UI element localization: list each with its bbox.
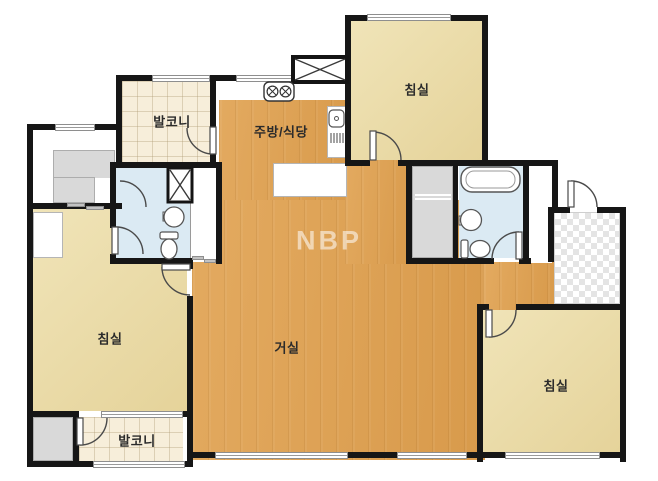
door-leaf — [77, 418, 83, 445]
watermark: NBP — [296, 226, 362, 257]
bathroom-right-fixtures — [459, 167, 520, 258]
door-leaf — [516, 232, 522, 259]
label-kitchen-dining: 주방/식당 — [254, 122, 308, 141]
vent-lines — [331, 133, 343, 143]
door-arc — [373, 132, 401, 160]
door-leaf — [112, 227, 118, 254]
label-bedroom-left: 침실 — [98, 329, 123, 348]
toilet-icon — [161, 239, 177, 259]
label-bedroom-top-right: 침실 — [405, 80, 430, 99]
entrance-door-leaf — [568, 181, 574, 207]
floorplan-canvas: 발코니 주방/식당 침실 침실 거실 침실 발코니 NBP — [0, 0, 658, 481]
door-leaf — [370, 131, 376, 160]
door-arc — [80, 418, 107, 445]
stove-icon — [264, 82, 294, 101]
door-leaf — [162, 264, 190, 270]
door-arc — [489, 310, 516, 337]
toilet-tank-icon — [461, 240, 468, 258]
door-arc — [162, 267, 190, 295]
door-leaf — [486, 310, 492, 337]
washbasin-icon — [164, 207, 184, 227]
label-balcony-top: 발코니 — [153, 112, 190, 131]
bathtub-inner — [466, 171, 515, 188]
label-balcony-bottom: 발코니 — [118, 431, 155, 450]
toilet-icon — [470, 241, 490, 258]
door-arc — [492, 232, 519, 259]
label-bedroom-bottom-right: 침실 — [544, 376, 569, 395]
shower-screen-arc — [120, 181, 146, 207]
door-arc — [116, 227, 143, 254]
washbasin-icon — [461, 210, 482, 231]
label-living-room: 거실 — [275, 338, 300, 357]
door-arc — [187, 128, 213, 154]
entrance-door-arc — [571, 181, 597, 207]
door-leaf — [210, 127, 216, 154]
bathroom-left-fixtures — [160, 207, 184, 259]
kitchen-sink-icon — [329, 110, 344, 127]
toilet-tank-icon — [160, 232, 178, 239]
